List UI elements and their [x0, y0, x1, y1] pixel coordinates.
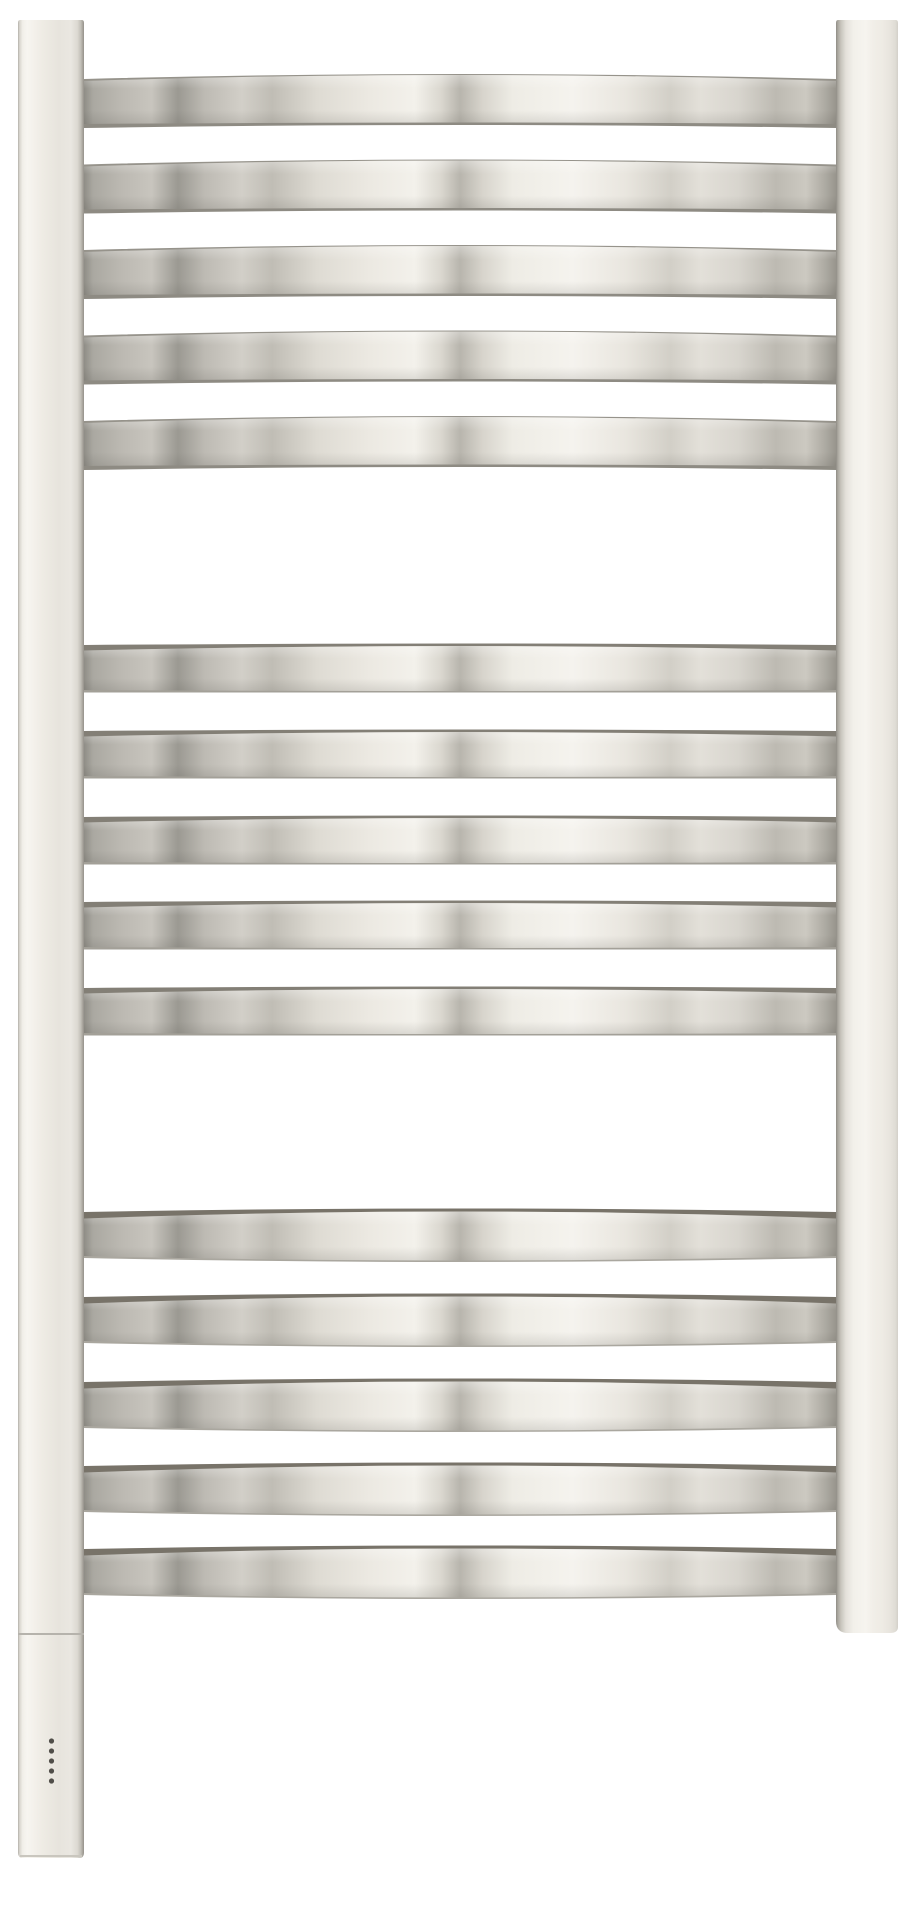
heater-control [18, 1633, 84, 1858]
towel-bar-6 [84, 644, 836, 693]
towel-bar-13 [84, 1379, 836, 1433]
bar-face-sheen [84, 1549, 836, 1598]
bar-face-sheen [84, 417, 836, 466]
towel-bar-9 [84, 901, 836, 950]
bar-face-sheen [84, 1212, 836, 1261]
towel-bar-5 [84, 416, 836, 470]
bar-face-sheen [84, 646, 836, 691]
led-indicator-4 [49, 1768, 54, 1773]
bar-face-sheen [84, 1466, 836, 1515]
towel-bar-14 [84, 1463, 836, 1517]
bar-face-sheen [84, 1297, 836, 1346]
bar-face-sheen [84, 161, 836, 210]
bar-face-sheen [84, 1382, 836, 1431]
led-indicator-5 [49, 1778, 54, 1783]
towel-bar-11 [84, 1209, 836, 1263]
bar-face-sheen [84, 246, 836, 295]
towel-bar-1 [84, 74, 836, 128]
led-indicator-1 [49, 1738, 54, 1743]
towel-bar-3 [84, 245, 836, 299]
bar-face-sheen [84, 989, 836, 1034]
towel-bar-10 [84, 987, 836, 1036]
towel-bar-12 [84, 1294, 836, 1348]
led-indicator-3 [49, 1758, 54, 1763]
towel-warmer-illustration [0, 0, 919, 1920]
towel-bar-8 [84, 816, 836, 865]
towel-bar-4 [84, 331, 836, 385]
towel-bar-2 [84, 160, 836, 214]
led-indicator-2 [49, 1748, 54, 1753]
heater-control-box [18, 1635, 84, 1858]
left-post [18, 20, 84, 1633]
control-box-seam [18, 1633, 84, 1635]
right-post [836, 20, 898, 1633]
bar-face-sheen [84, 332, 836, 381]
bar-face-sheen [84, 75, 836, 124]
towel-bar-7 [84, 730, 836, 779]
product-photo [0, 0, 919, 1920]
bar-face-sheen [84, 903, 836, 948]
control-box-bottom-edge [20, 1855, 82, 1857]
bar-face-sheen [84, 818, 836, 863]
towel-bar-15 [84, 1546, 836, 1600]
towel-bars [84, 74, 836, 1599]
bar-face-sheen [84, 732, 836, 777]
